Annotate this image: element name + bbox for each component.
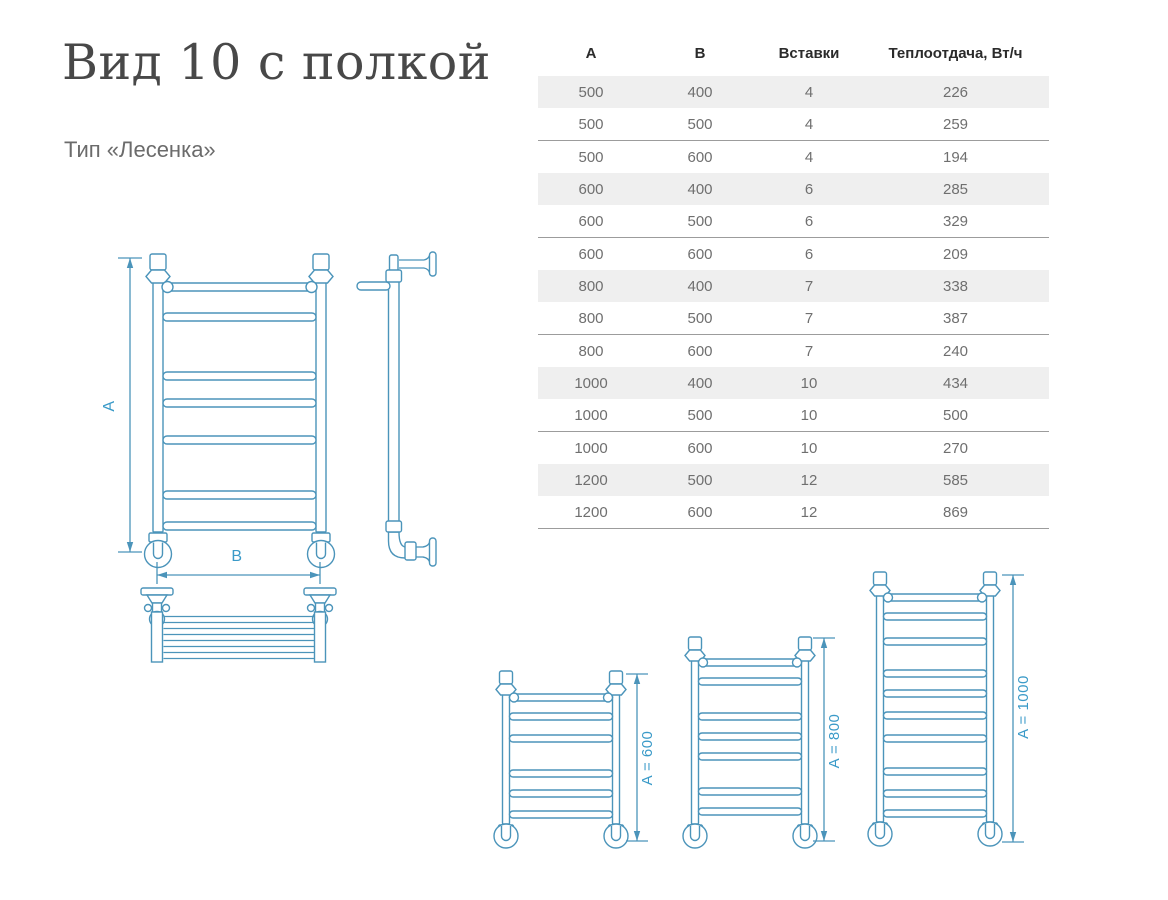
rung xyxy=(884,670,987,677)
dim-arrow xyxy=(157,572,167,578)
bottom-collar xyxy=(386,521,402,532)
top-cap xyxy=(390,255,399,271)
rung xyxy=(510,811,613,818)
variant-800-ladder xyxy=(683,637,817,848)
rung xyxy=(884,790,987,797)
dim-arrow xyxy=(1010,575,1016,585)
wall-flange xyxy=(430,538,437,566)
post xyxy=(503,688,510,824)
top-rail xyxy=(163,283,316,291)
bracket-nut xyxy=(326,605,333,612)
top-rail xyxy=(510,694,613,701)
top-fitting xyxy=(689,637,702,650)
rung xyxy=(699,678,802,685)
rung xyxy=(510,735,613,742)
dim-arrow xyxy=(1010,832,1016,842)
wall-flange xyxy=(141,588,173,595)
rung xyxy=(699,713,802,720)
post xyxy=(389,270,400,532)
variant-600-ladder xyxy=(494,671,628,848)
wall-flange xyxy=(304,588,336,595)
rung xyxy=(699,733,802,740)
dim-arrow xyxy=(821,638,827,648)
rung xyxy=(163,522,316,530)
rung xyxy=(510,770,613,777)
wall-cup xyxy=(308,541,335,568)
bracket-nut xyxy=(308,605,315,612)
wall-cup xyxy=(604,824,628,848)
top-fitting xyxy=(984,572,997,585)
rung xyxy=(699,788,802,795)
dimension-label-a: A xyxy=(101,400,118,411)
dim-arrow xyxy=(634,831,640,841)
variant-1000-ladder xyxy=(868,572,1002,846)
rung xyxy=(884,712,987,719)
dim-arrow xyxy=(310,572,320,578)
dimension-label-a1000: A = 1000 xyxy=(1015,675,1032,739)
page: { "page": { "title": "Вид 10 с полкой", … xyxy=(0,0,1168,900)
rung xyxy=(163,491,316,499)
wall-cup xyxy=(793,824,817,848)
wall-cup xyxy=(145,541,172,568)
top-fitting xyxy=(874,572,887,585)
rung xyxy=(884,690,987,697)
bracket-nut xyxy=(145,605,152,612)
post xyxy=(987,589,994,822)
rail-joint xyxy=(699,658,708,667)
shelf-slats xyxy=(164,617,315,659)
bracket-nut xyxy=(163,605,170,612)
wall-cup xyxy=(683,824,707,848)
rung xyxy=(699,808,802,815)
bracket-stem xyxy=(316,603,325,612)
rail-joint xyxy=(162,282,173,293)
rung xyxy=(163,313,316,321)
post xyxy=(692,654,699,824)
wall-cup xyxy=(868,822,892,846)
rung xyxy=(699,753,802,760)
side-view-drawing xyxy=(357,252,436,566)
wall-flange xyxy=(430,252,437,276)
dim-arrow xyxy=(634,674,640,684)
top-fitting xyxy=(799,637,812,650)
top-fitting xyxy=(610,671,623,684)
post xyxy=(316,272,326,532)
post xyxy=(877,589,884,822)
dimension-label-a800: A = 800 xyxy=(826,714,843,769)
shelf-side-rail xyxy=(315,612,326,662)
rail-joint xyxy=(884,593,893,602)
technical-drawings-svg: A B A = 600 A = 800 A = 1000 xyxy=(0,0,1168,900)
rung xyxy=(884,638,987,645)
rung xyxy=(163,399,316,407)
top-fitting xyxy=(500,671,513,684)
dim-arrow xyxy=(821,831,827,841)
elbow-nut xyxy=(405,542,416,560)
rung xyxy=(510,713,613,720)
rail-joint xyxy=(978,593,987,602)
wall-cup xyxy=(978,822,1002,846)
dimension-label-a600: A = 600 xyxy=(639,731,656,786)
top-fitting xyxy=(313,254,329,270)
post xyxy=(153,272,163,532)
shelf-side-rail xyxy=(152,612,163,662)
top-collar xyxy=(386,270,402,282)
generated-drawings xyxy=(118,254,1024,848)
rung xyxy=(163,436,316,444)
dim-arrow xyxy=(127,258,133,268)
rung xyxy=(510,790,613,797)
rail-joint xyxy=(510,693,519,702)
shelf-arm xyxy=(357,282,390,290)
shelf-top-view-drawing xyxy=(141,588,336,662)
rung xyxy=(163,372,316,380)
top-rail xyxy=(699,659,802,666)
post xyxy=(613,688,620,824)
rail-joint xyxy=(604,693,613,702)
top-fitting xyxy=(150,254,166,270)
rail-joint xyxy=(793,658,802,667)
rung xyxy=(884,810,987,817)
bracket-stem xyxy=(153,603,162,612)
front-view-ladder xyxy=(145,254,335,568)
wall-cup xyxy=(494,824,518,848)
bracket-cone xyxy=(147,595,167,603)
dim-arrow xyxy=(127,542,133,552)
rung xyxy=(884,768,987,775)
vertical-dimension xyxy=(118,258,142,552)
dimension-label-b: B xyxy=(231,548,242,565)
rail-joint xyxy=(306,282,317,293)
horizontal-dimension xyxy=(157,562,320,584)
rung xyxy=(884,613,987,620)
post xyxy=(802,654,809,824)
rung xyxy=(884,735,987,742)
top-rail xyxy=(884,594,987,601)
bracket-cone xyxy=(310,595,330,603)
